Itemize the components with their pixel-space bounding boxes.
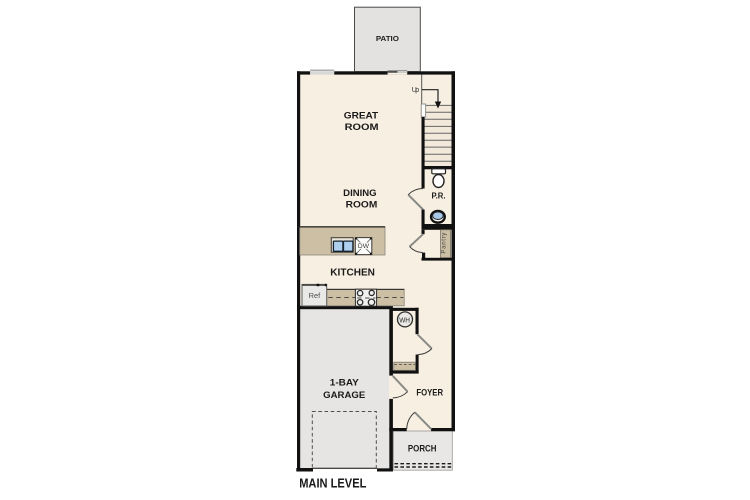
svg-text:FOYER: FOYER	[416, 387, 443, 397]
svg-text:DW: DW	[358, 244, 369, 250]
svg-text:DINING: DINING	[343, 188, 376, 198]
svg-text:ROOM: ROOM	[346, 199, 378, 209]
svg-text:WH: WH	[399, 317, 410, 324]
svg-text:Ref: Ref	[309, 291, 322, 300]
svg-text:Up: Up	[412, 87, 419, 94]
svg-text:1-BAY: 1-BAY	[330, 378, 360, 389]
svg-text:KITCHEN: KITCHEN	[330, 268, 375, 279]
svg-text:PORCH: PORCH	[408, 443, 437, 453]
svg-text:Pantry: Pantry	[441, 232, 448, 254]
svg-text:P.R.: P.R.	[432, 192, 446, 201]
svg-text:GARAGE: GARAGE	[323, 390, 366, 401]
svg-text:ROOM: ROOM	[345, 122, 379, 132]
svg-text:MAIN LEVEL: MAIN LEVEL	[299, 477, 366, 491]
svg-text:PATIO: PATIO	[376, 34, 399, 43]
svg-text:GREAT: GREAT	[344, 110, 379, 120]
